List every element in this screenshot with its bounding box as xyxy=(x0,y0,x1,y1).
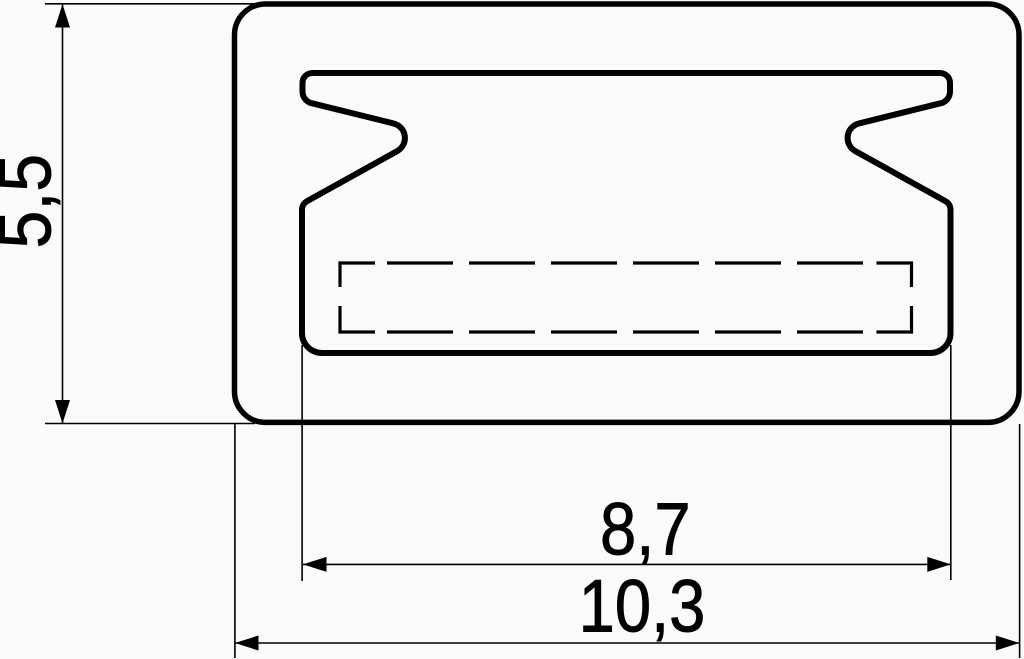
svg-text:10,3: 10,3 xyxy=(579,565,706,648)
svg-text:8,7: 8,7 xyxy=(600,488,691,571)
svg-text:5,5: 5,5 xyxy=(0,154,67,249)
